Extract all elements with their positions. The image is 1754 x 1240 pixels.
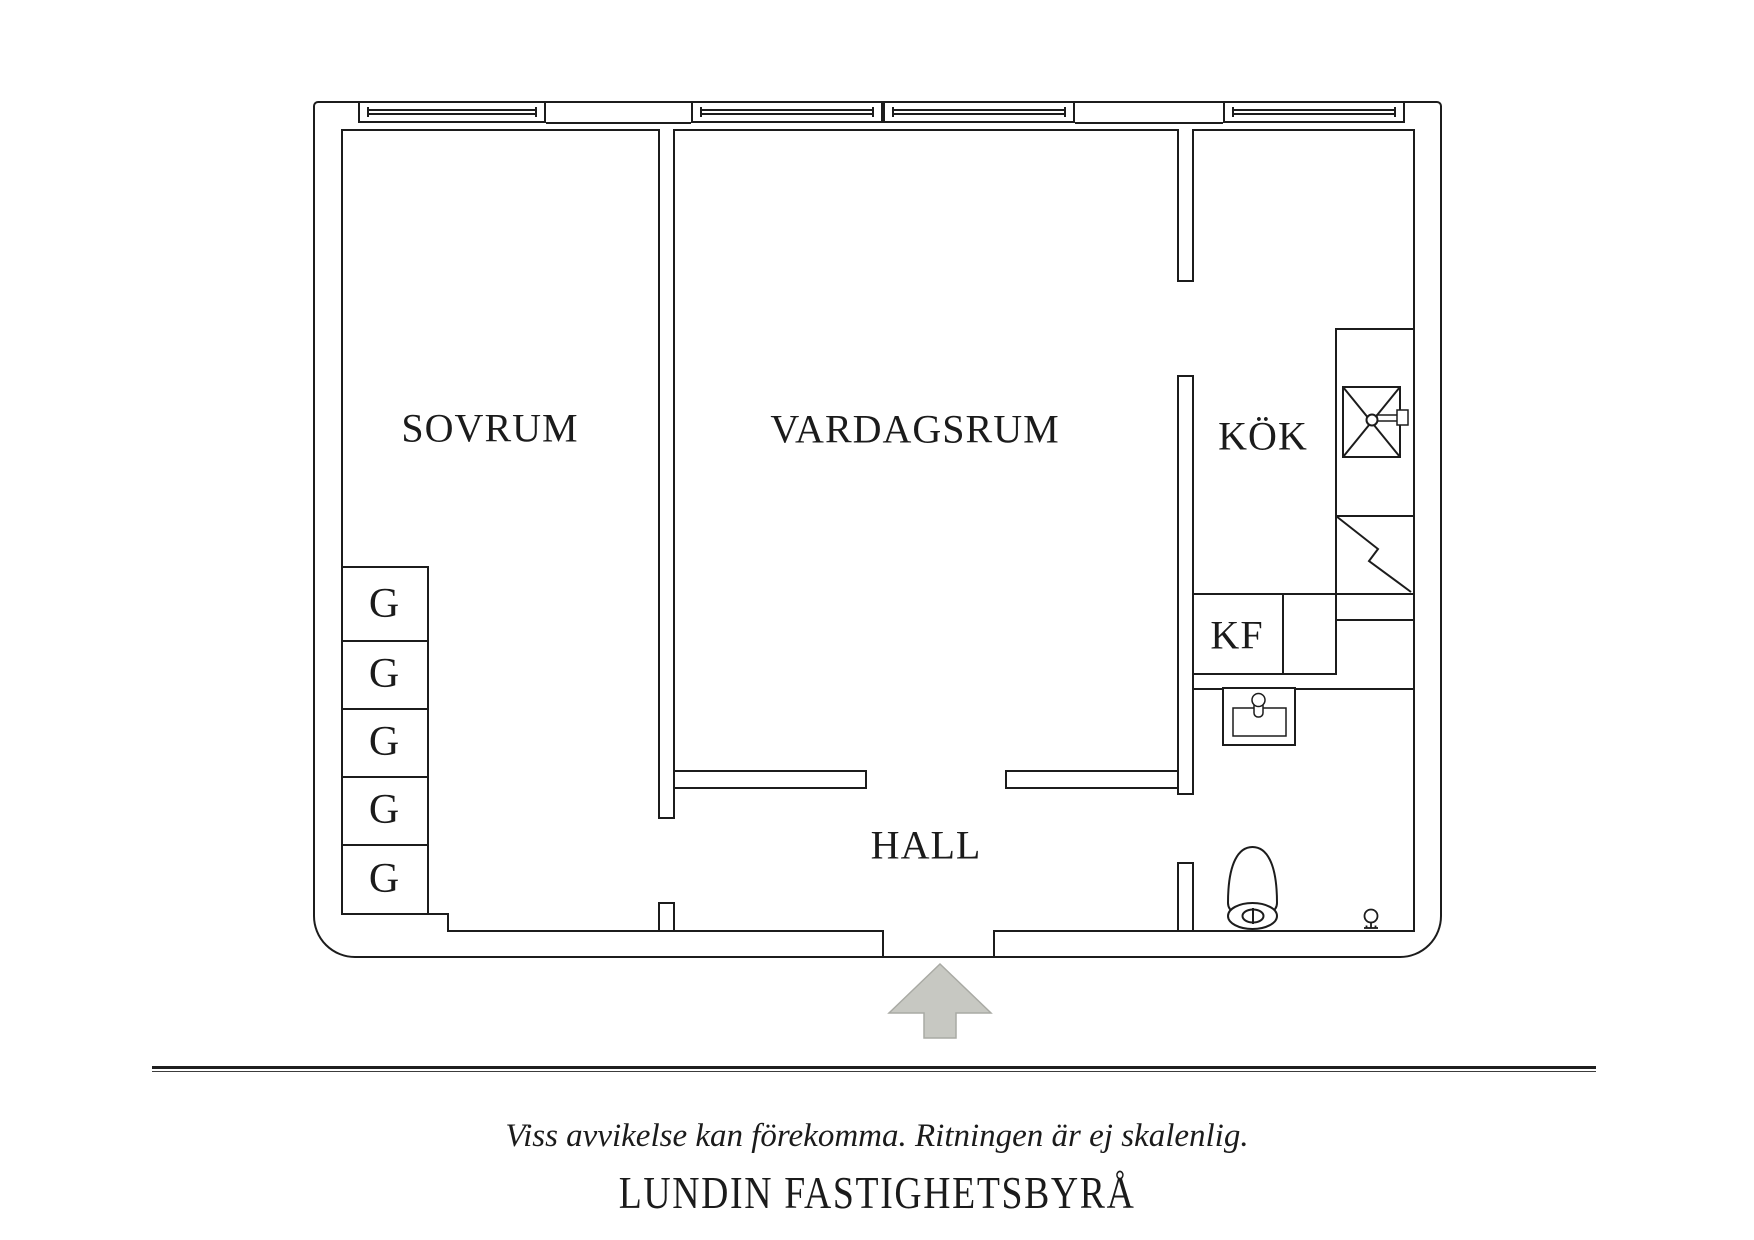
room-label-hall: HALL xyxy=(871,822,982,869)
room-label-fridge-freezer: KF xyxy=(1210,612,1263,659)
room-label-bedroom: SOVRUM xyxy=(401,405,578,452)
floor-drain-icon xyxy=(1364,910,1378,929)
footer-rule xyxy=(152,1066,1596,1069)
counter-zigzag-icon xyxy=(1336,516,1411,592)
footer-rule-thin xyxy=(152,1071,1596,1072)
kitchen-sink-icon xyxy=(1343,387,1408,457)
room-label-kitchen: KÖK xyxy=(1218,413,1308,460)
fixtures-layer xyxy=(0,0,1754,1240)
bathroom-sink-icon xyxy=(1223,688,1295,745)
closet-label: G xyxy=(369,650,399,698)
closet-label: G xyxy=(369,855,399,903)
closet-label: G xyxy=(369,718,399,766)
closet-label: G xyxy=(369,786,399,834)
footer-brand-text: LUNDIN FASTIGHETSBYRÅ xyxy=(619,1166,1136,1219)
toilet-icon xyxy=(1228,847,1277,929)
closet-label: G xyxy=(369,580,399,628)
footer-brand: LUNDIN FASTIGHETSBYRÅ xyxy=(0,1166,1754,1219)
floor-plan-page: SOVRUM VARDAGSRUM KÖK HALL KF G G G G G … xyxy=(0,0,1754,1240)
entrance-arrow-icon xyxy=(889,964,991,1038)
footer-disclaimer: Viss avvikelse kan förekomma. Ritningen … xyxy=(0,1118,1754,1155)
room-label-livingroom: VARDAGSRUM xyxy=(770,406,1059,453)
